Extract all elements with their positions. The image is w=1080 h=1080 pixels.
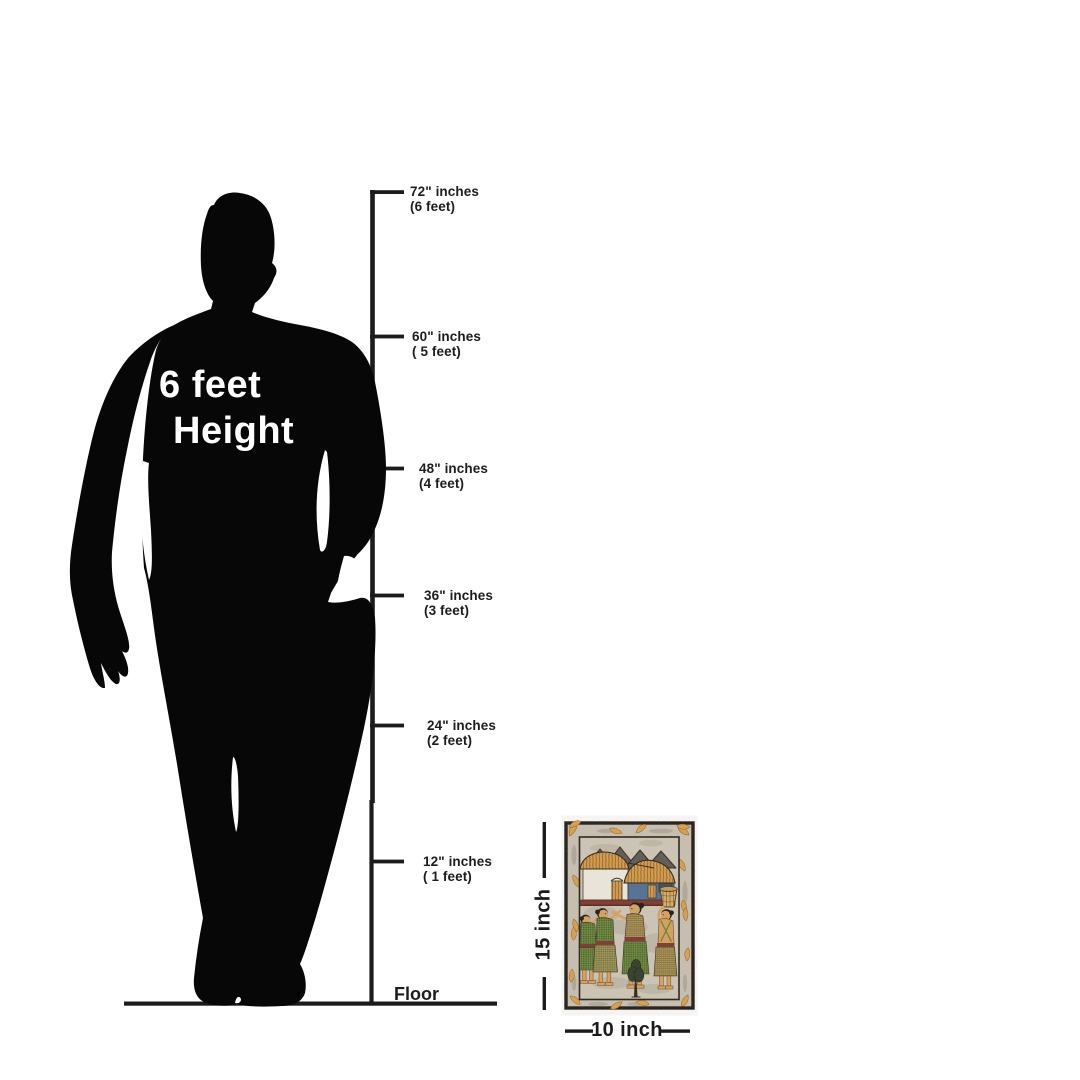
person-height-label-line2: Height xyxy=(173,408,294,454)
scale-mark-inches-label: 36" inches xyxy=(424,588,493,603)
scale-mark-36: 36" inches (3 feet) xyxy=(424,588,493,618)
scale-mark-feet-label: (6 feet) xyxy=(410,199,479,214)
scale-mark-inches-label: 72" inches xyxy=(410,184,479,199)
tick-12in xyxy=(370,860,404,864)
scale-mark-feet-label: ( 1 feet) xyxy=(423,869,492,884)
floor-label: Floor xyxy=(394,984,439,1005)
scale-mark-feet-label: ( 5 feet) xyxy=(412,344,481,359)
scale-mark-inches-label: 48" inches xyxy=(419,461,488,476)
scale-mark-inches-label: 12" inches xyxy=(423,854,492,869)
tick-24in xyxy=(370,724,404,728)
tick-72in xyxy=(370,190,404,194)
size-guide-diagram: 6 feet Height 72" inches (6 feet) 60" in… xyxy=(0,0,1080,1080)
scale-mark-12: 12" inches ( 1 feet) xyxy=(423,854,492,884)
scale-mark-48: 48" inches (4 feet) xyxy=(419,461,488,491)
floor-line xyxy=(124,1002,497,1006)
scale-mark-feet-label: (4 feet) xyxy=(419,476,488,491)
scale-mark-inches-label: 24" inches xyxy=(427,718,496,733)
scale-mark-72: 72" inches (6 feet) xyxy=(410,184,479,214)
width-dim-line-right xyxy=(661,1029,690,1032)
scale-mark-feet-label: (2 feet) xyxy=(427,733,496,748)
scale-mark-feet-label: (3 feet) xyxy=(424,603,493,618)
artwork-paper-grain xyxy=(568,825,691,1006)
person-height-label-line1: 6 feet xyxy=(159,362,294,408)
scale-mark-60: 60" inches ( 5 feet) xyxy=(412,329,481,359)
tick-36in xyxy=(370,594,404,598)
artwork-width-label: 10 inch xyxy=(589,1019,665,1042)
scale-mark-inches-label: 60" inches xyxy=(412,329,481,344)
person-height-label: 6 feet Height xyxy=(159,362,294,454)
tick-60in xyxy=(370,335,404,339)
artwork-height-label: 15 inch xyxy=(533,855,556,995)
product-artwork-image xyxy=(566,820,693,1011)
person-silhouette xyxy=(70,193,386,1007)
scale-vertical-line-lower xyxy=(369,800,373,1005)
scale-mark-24: 24" inches (2 feet) xyxy=(427,718,496,748)
